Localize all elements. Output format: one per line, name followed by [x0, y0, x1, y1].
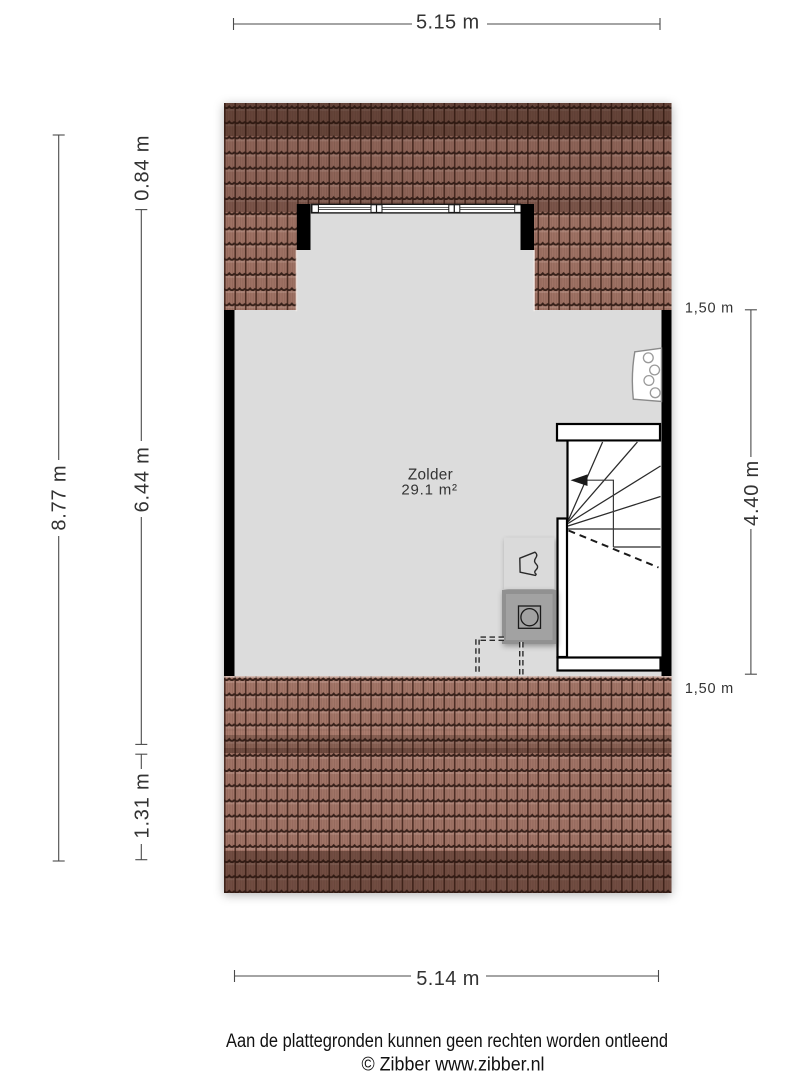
svg-text:1,50 m: 1,50 m — [685, 300, 734, 316]
svg-text:4.40 m: 4.40 m — [741, 460, 763, 526]
svg-text:1,50 m: 1,50 m — [685, 681, 734, 697]
svg-text:5.15 m: 5.15 m — [416, 12, 480, 34]
svg-text:5.14 m: 5.14 m — [416, 968, 480, 990]
svg-text:© Zibber www.zibber.nl: © Zibber www.zibber.nl — [362, 1055, 545, 1076]
svg-text:6.44 m: 6.44 m — [131, 446, 153, 512]
svg-text:8.77 m: 8.77 m — [49, 465, 71, 531]
svg-text:29.1 m²: 29.1 m² — [401, 481, 457, 498]
svg-text:1.31 m: 1.31 m — [131, 773, 153, 839]
svg-text:0.84 m: 0.84 m — [131, 135, 153, 201]
svg-text:Aan de plattegronden kunnen ge: Aan de plattegronden kunnen geen rechten… — [226, 1031, 668, 1052]
